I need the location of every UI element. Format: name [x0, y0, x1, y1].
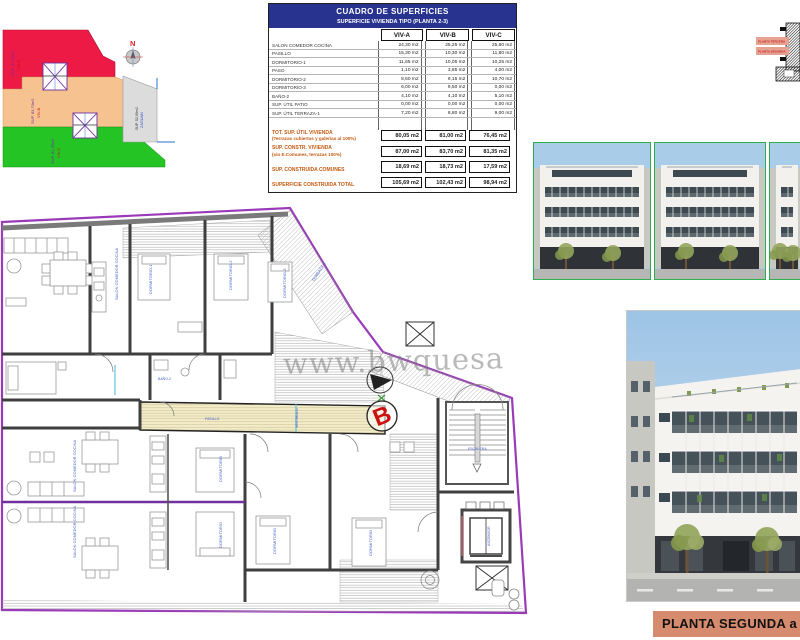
room-label: SALON COMEDOR COCINA — [114, 247, 119, 300]
room-label: ASCENSOR — [487, 526, 491, 546]
render-image — [655, 143, 765, 279]
elevator — [462, 502, 510, 562]
summary-label: SUP. CONSTRUIDA COMUNES — [270, 167, 378, 173]
table-row: DORMITORIO-36,00 m29,50 m20,00 m2 — [269, 84, 516, 93]
row-value: 9,50 m2 — [425, 84, 469, 92]
row-value: 10,30 m2 — [425, 50, 469, 58]
summary-row: TOT. SUP. ÚTIL VIVIENDA(Terrazas cubiert… — [269, 130, 516, 142]
summary-row: SUP. CONSTRUIDA COMUNES18,69 m218,73 m21… — [269, 161, 516, 173]
room-label: DORMITORIO-3 — [282, 268, 287, 298]
room-label: BAÑO-2 — [158, 376, 171, 381]
site-area-zaguan — [123, 76, 157, 142]
building-render-3 — [769, 142, 800, 280]
viv-a-sup-label: SUP. 87,00m2 — [10, 50, 15, 76]
table-summary: TOT. SUP. ÚTIL VIVIENDA(Terrazas cubiert… — [269, 130, 516, 193]
row-value: 4,10 m2 — [425, 92, 469, 100]
table-row: DORMITORIO-28,60 m29,15 m210,70 m2 — [269, 75, 516, 84]
table-row: SALON COMEDOR COCINA24,30 m225,25 m225,6… — [269, 41, 516, 50]
building-render-large — [626, 310, 800, 602]
row-value: 4,00 m2 — [471, 67, 515, 75]
table-row: BAÑO-24,10 m24,10 m25,10 m2 — [269, 92, 516, 101]
room-label: DORMITORIO — [272, 528, 277, 554]
room-label: DORMITORIO — [218, 456, 223, 482]
row-value: 11,65 m2 — [378, 58, 422, 66]
table-row: PASILLO15,30 m210,30 m211,80 m2 — [269, 50, 516, 59]
summary-label: TOT. SUP. ÚTIL VIVIENDA(Terrazas cubiert… — [270, 130, 378, 142]
zaguan-name-label: ZAGUAN — [140, 112, 144, 128]
block-marker-b: B — [367, 401, 397, 433]
row-value: 0,00 m2 — [425, 101, 469, 109]
table-subtitle: SUPERFICIE VIVIENDA TIPO (PLANTA 2-3) — [269, 18, 516, 28]
column-header: VIV-A — [381, 29, 424, 41]
viv-c-sup-label: SUP. 81,35m2 — [50, 138, 55, 164]
summary-label: SUP. CONSTR. VIVIENDA(sin E.Comunes, ter… — [270, 145, 378, 157]
table-column-headers: VIV-AVIV-BVIV-C — [269, 29, 516, 41]
summary-value: 105,69 m2 — [381, 177, 422, 189]
row-value: 5,10 m2 — [471, 92, 515, 100]
row-value: 0,00 m2 — [471, 84, 515, 92]
summary-label: SUPERFICIE CONSTRUIDA TOTAL — [270, 182, 378, 188]
planta-segunda-label: PLANTA SEGUNDA — [758, 50, 787, 54]
summary-value: 80,05 m2 — [381, 130, 422, 142]
room-label: SALON COMEDOR COCINA — [72, 505, 77, 558]
row-value: 8,60 m2 — [378, 75, 422, 83]
row-label: SALON COMEDOR COCINA — [270, 41, 375, 49]
sidewalk — [627, 573, 800, 579]
viv-c-name-label: VIV-C — [56, 147, 61, 158]
zaguan-sup-label: SUP. 52,09m2 — [135, 107, 139, 130]
row-value: 8,80 m2 — [425, 109, 469, 117]
summary-row: SUPERFICIE CONSTRUIDA TOTAL105,69 m2102,… — [269, 177, 516, 189]
plan-title-plate: PLANTA SEGUNDA a — [653, 611, 800, 637]
table-title: CUADRO DE SUPERFICIES — [269, 4, 516, 18]
table-row: SUP. ÚTIL TERRAZA-17,20 m28,80 m29,00 m2 — [269, 109, 516, 118]
row-value: 10,05 m2 — [425, 58, 469, 66]
row-label: PASO — [270, 67, 375, 75]
table-row: SUP. ÚTIL PATIO0,00 m20,00 m20,00 m2 — [269, 101, 516, 110]
row-value: 25,60 m2 — [471, 41, 515, 49]
room-label: SALON COMEDOR COCINA — [72, 439, 77, 492]
summary-sublabel: (Terrazas cubiertas y galerías al 100%) — [272, 136, 378, 142]
row-label: DORMITORIO-2 — [270, 75, 375, 83]
summary-value: 98,94 m2 — [469, 177, 510, 189]
summary-value: 18,73 m2 — [425, 161, 466, 173]
site-plan-areas — [3, 30, 175, 167]
building-render-2 — [654, 142, 766, 280]
column-header-spacer — [270, 29, 378, 41]
planta-tercera-label: PLANTA TERCERA — [758, 40, 786, 44]
room-label: ESCALERA — [468, 447, 487, 451]
room-label: DORMITORIO-1 — [148, 264, 153, 294]
viv-b-name-label: VIV-B — [36, 107, 41, 118]
row-value: 3,85 m2 — [425, 67, 469, 75]
room-label: VESTIBULO — [295, 408, 299, 428]
summary-value: 81,35 m2 — [469, 146, 510, 158]
row-label: DORMITORIO-1 — [270, 58, 375, 66]
table-row: PASO1,10 m23,85 m24,00 m2 — [269, 67, 516, 76]
vent-shaft — [406, 322, 434, 346]
summary-sublabel: (sin E.Comunes, terrazas 100%) — [272, 152, 378, 158]
column-header: VIV-B — [426, 29, 469, 41]
summary-value: 18,69 m2 — [381, 161, 422, 173]
render-image — [770, 143, 800, 279]
table-row: DORMITORIO-111,65 m210,05 m210,25 m2 — [269, 58, 516, 67]
table-rows: SALON COMEDOR COCINA24,30 m225,25 m225,6… — [269, 41, 516, 130]
north-label: N — [130, 39, 135, 48]
section-diagram-mini: PLANTA TERCERA PLANTA SEGUNDA — [740, 15, 800, 115]
row-label: SUP. ÚTIL TERRAZA-1 — [270, 109, 375, 117]
row-value: 4,10 m2 — [378, 92, 422, 100]
viv-a-name-label: VIV-A — [16, 59, 21, 70]
building-render-1 — [533, 142, 651, 280]
summary-value: 87,00 m2 — [381, 146, 422, 158]
corridor — [140, 402, 385, 434]
room-label: DORMITORIO-2 — [228, 260, 233, 290]
row-value: 10,70 m2 — [471, 75, 515, 83]
surface-table: CUADRO DE SUPERFICIES SUPERFICIE VIVIEND… — [268, 3, 517, 193]
room-label: DORMITORIO — [218, 522, 223, 548]
neighbor-building — [627, 361, 655, 576]
north-compass: N — [123, 39, 143, 67]
summary-row: SUP. CONSTR. VIVIENDA(sin E.Comunes, ter… — [269, 145, 516, 157]
row-value: 1,10 m2 — [378, 67, 422, 75]
summary-value: 17,59 m2 — [469, 161, 510, 173]
row-label: DORMITORIO-3 — [270, 84, 375, 92]
balcony-bands — [672, 411, 797, 513]
row-value: 6,00 m2 — [378, 84, 422, 92]
row-label: SUP. ÚTIL PATIO — [270, 101, 375, 109]
row-label: PASILLO — [270, 50, 375, 58]
plan-sheet-page: N SUP. 87,00m2 VIV-A SUP. 83,70m2 VIV-B … — [0, 0, 800, 640]
site-plan: N SUP. 87,00m2 VIV-A SUP. 83,70m2 VIV-B … — [2, 18, 182, 178]
column-header: VIV-C — [472, 29, 515, 41]
row-value: 0,00 m2 — [378, 101, 422, 109]
summary-value: 83,70 m2 — [425, 146, 466, 158]
render-image — [534, 143, 650, 279]
floor-plan-svg: B SALON COMEDOR COCINADORMITORIO-1DORMIT… — [0, 202, 545, 624]
render-strip — [533, 142, 800, 280]
row-value: 15,30 m2 — [378, 50, 422, 58]
row-value: 9,15 m2 — [425, 75, 469, 83]
room-label: DORMITORIO — [368, 530, 373, 556]
row-value: 0,00 m2 — [471, 101, 515, 109]
summary-value: 102,43 m2 — [425, 177, 466, 189]
row-value: 25,25 m2 — [425, 41, 469, 49]
row-label: BAÑO-2 — [270, 92, 375, 100]
summary-value: 76,45 m2 — [469, 130, 510, 142]
row-value: 24,30 m2 — [378, 41, 422, 49]
summary-value: 81,00 m2 — [425, 130, 466, 142]
room-label: PASILLO — [205, 417, 220, 421]
row-value: 10,25 m2 — [471, 58, 515, 66]
row-value: 7,20 m2 — [378, 109, 422, 117]
row-value: 9,00 m2 — [471, 109, 515, 117]
viv-b-sup-label: SUP. 83,70m2 — [30, 98, 35, 124]
row-value: 11,80 m2 — [471, 50, 515, 58]
